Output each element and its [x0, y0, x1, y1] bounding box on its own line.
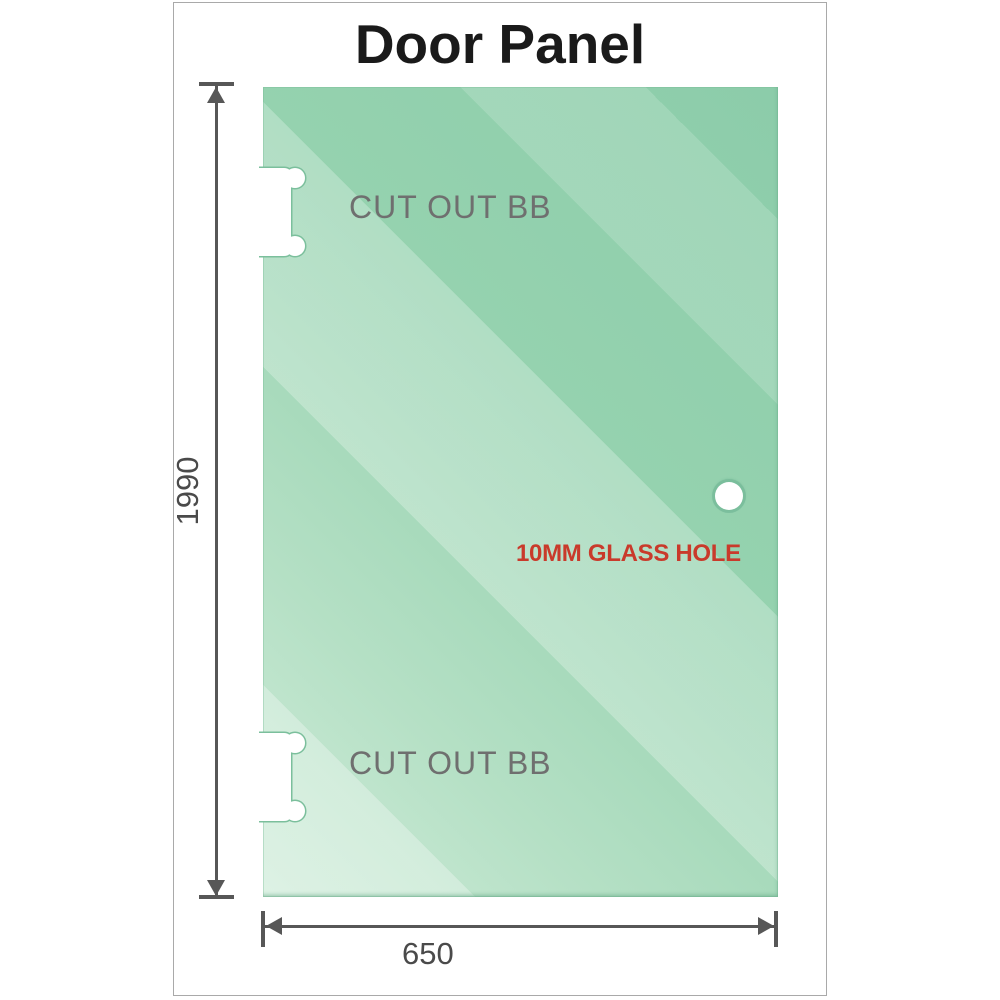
width-dim-cap-right: [774, 911, 778, 947]
width-dim-line: [265, 925, 777, 928]
glass-hole-label: 10MM GLASS HOLE: [516, 540, 741, 568]
height-arrow-down-icon: [207, 880, 225, 896]
height-dim-line: [215, 86, 218, 898]
cutout-bottom-label: CUT OUT BB: [349, 745, 609, 782]
hinge-cutout-top-icon: [259, 166, 311, 258]
width-dim-cap-left: [261, 911, 265, 947]
width-arrow-left-icon: [266, 917, 282, 935]
width-arrow-right-icon: [758, 917, 774, 935]
cutout-top-label: CUT OUT BB: [349, 189, 609, 226]
diagram-title: Door Panel: [173, 12, 827, 76]
height-arrow-up-icon: [207, 87, 225, 103]
door-panel-diagram: Door Panel CUT OUT BB CUT OUT BB 10MM GL…: [0, 0, 1000, 1000]
glass-hole-icon: [715, 482, 743, 510]
hinge-cutout-bottom-icon: [259, 731, 311, 823]
width-dimension-value: 650: [402, 936, 454, 972]
height-dimension-value: 1990: [170, 421, 206, 561]
